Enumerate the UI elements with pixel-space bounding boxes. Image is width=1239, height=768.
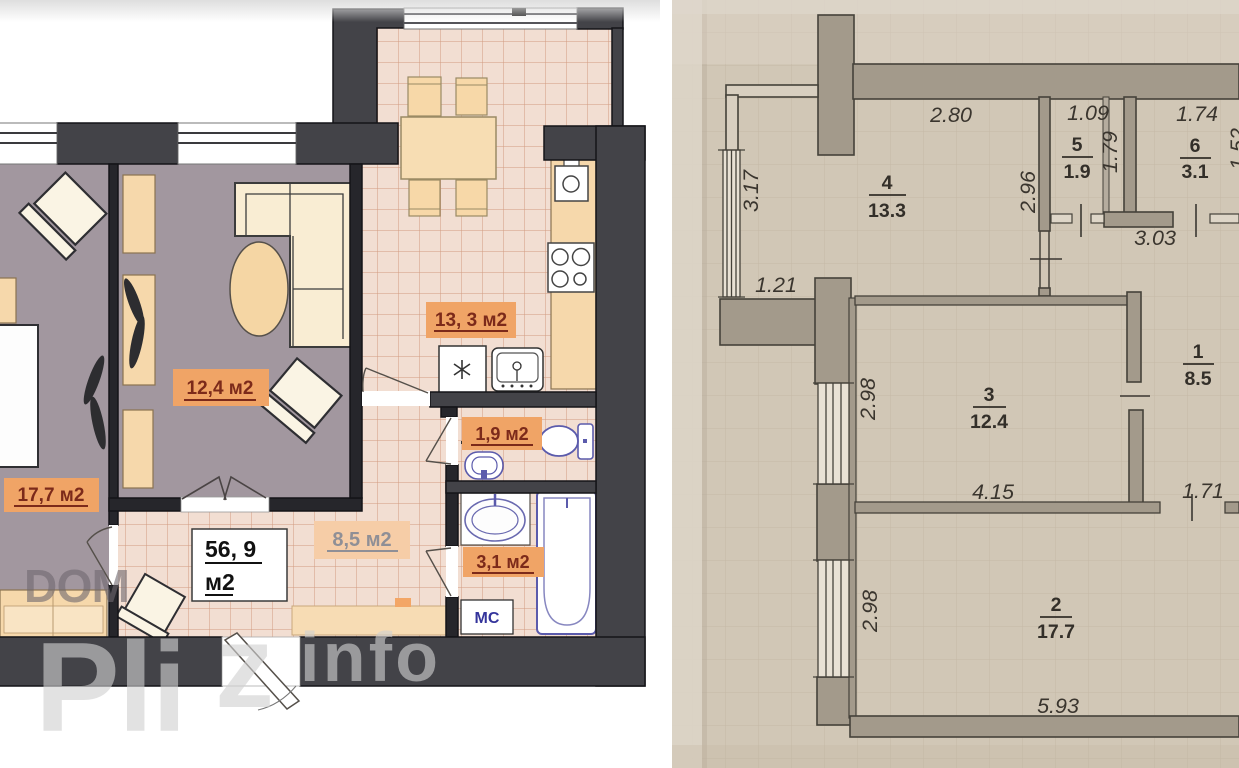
- svg-text:17.7: 17.7: [1037, 621, 1075, 643]
- svg-text:2.80: 2.80: [929, 103, 972, 127]
- svg-text:1.09: 1.09: [1067, 101, 1109, 125]
- svg-text:12,4 м2: 12,4 м2: [187, 378, 254, 399]
- svg-text:2.98: 2.98: [856, 378, 880, 421]
- svg-text:5.93: 5.93: [1037, 694, 1079, 718]
- svg-text:м2: м2: [205, 569, 235, 595]
- svg-text:DOM: DOM: [24, 560, 130, 612]
- svg-text:2: 2: [1051, 594, 1062, 616]
- svg-text:6: 6: [1190, 135, 1201, 157]
- svg-text:2.98: 2.98: [858, 590, 882, 633]
- svg-text:8,5 м2: 8,5 м2: [332, 529, 391, 551]
- svg-text:12.4: 12.4: [970, 411, 1008, 433]
- svg-text:1.74: 1.74: [1176, 102, 1218, 126]
- svg-text:3.03: 3.03: [1134, 226, 1176, 250]
- svg-text:13, 3 м2: 13, 3 м2: [435, 310, 507, 331]
- svg-text:13.3: 13.3: [868, 200, 906, 222]
- svg-text:4: 4: [882, 172, 893, 194]
- svg-text:1,9 м2: 1,9 м2: [475, 424, 528, 444]
- svg-text:3,1 м2: 3,1 м2: [476, 552, 529, 572]
- svg-text:Pli: Pli: [35, 616, 187, 758]
- svg-text:3: 3: [984, 384, 995, 406]
- svg-text:1.52: 1.52: [1226, 128, 1239, 170]
- svg-text:4.15: 4.15: [972, 480, 1015, 504]
- svg-text:1.79: 1.79: [1098, 131, 1122, 173]
- svg-text:3.17: 3.17: [739, 169, 763, 212]
- svg-text:3.1: 3.1: [1181, 161, 1208, 183]
- svg-text:56, 9: 56, 9: [205, 536, 256, 562]
- svg-text:z: z: [215, 601, 274, 733]
- svg-text:1.21: 1.21: [755, 273, 797, 297]
- svg-text:2.96: 2.96: [1016, 171, 1040, 214]
- svg-text:17,7 м2: 17,7 м2: [18, 485, 85, 506]
- svg-text:1.71: 1.71: [1182, 479, 1224, 503]
- svg-text:МС: МС: [475, 610, 500, 627]
- svg-text:5: 5: [1072, 134, 1083, 156]
- svg-text:8.5: 8.5: [1184, 368, 1211, 390]
- svg-text:1.9: 1.9: [1063, 161, 1090, 183]
- svg-text:1: 1: [1193, 341, 1204, 363]
